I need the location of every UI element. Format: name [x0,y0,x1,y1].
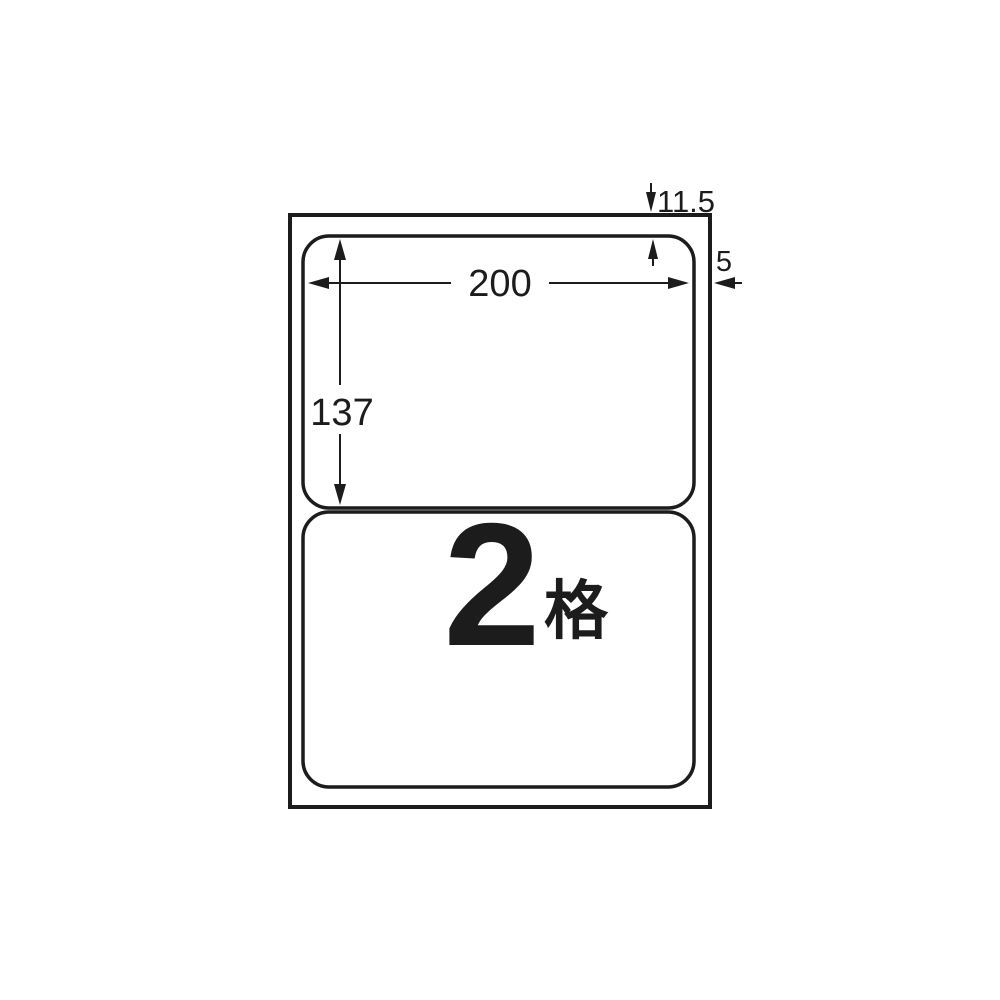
right-margin-dimension: 5 [714,246,742,289]
arrow-left-icon [714,277,735,289]
cell-count-number: 2 [443,488,540,683]
height-dimension-value: 137 [310,392,373,434]
width-dimension-value: 200 [468,263,531,305]
label-sheet-diagram-page: 200 137 11.5 5 2 格 [0,0,1000,1000]
label-sheet-diagram: 200 137 11.5 5 2 格 [0,0,1000,1000]
top-margin-value: 11.5 [657,184,715,219]
arrow-down-icon [646,192,656,212]
cell-count-suffix: 格 [544,575,609,647]
right-margin-value: 5 [716,246,732,278]
